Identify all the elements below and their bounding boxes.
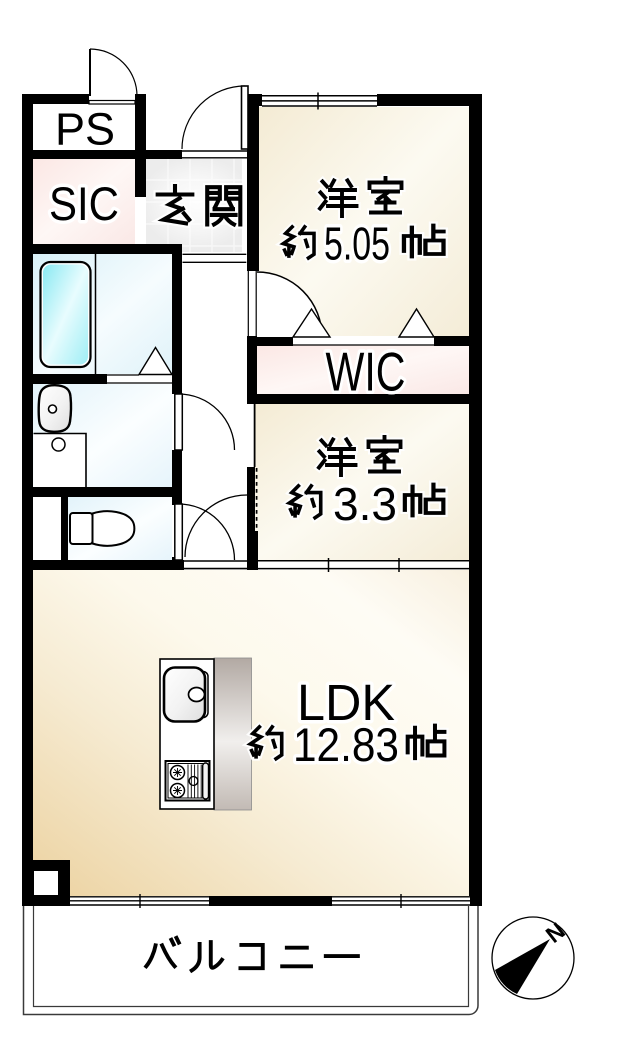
svg-text:SIC: SIC (49, 177, 119, 230)
svg-text:5.05: 5.05 (324, 218, 390, 270)
svg-text:PS: PS (55, 104, 115, 155)
svg-text:12.83: 12.83 (293, 718, 399, 771)
svg-text:WIC: WIC (326, 341, 406, 403)
svg-text:3.3: 3.3 (333, 478, 397, 530)
